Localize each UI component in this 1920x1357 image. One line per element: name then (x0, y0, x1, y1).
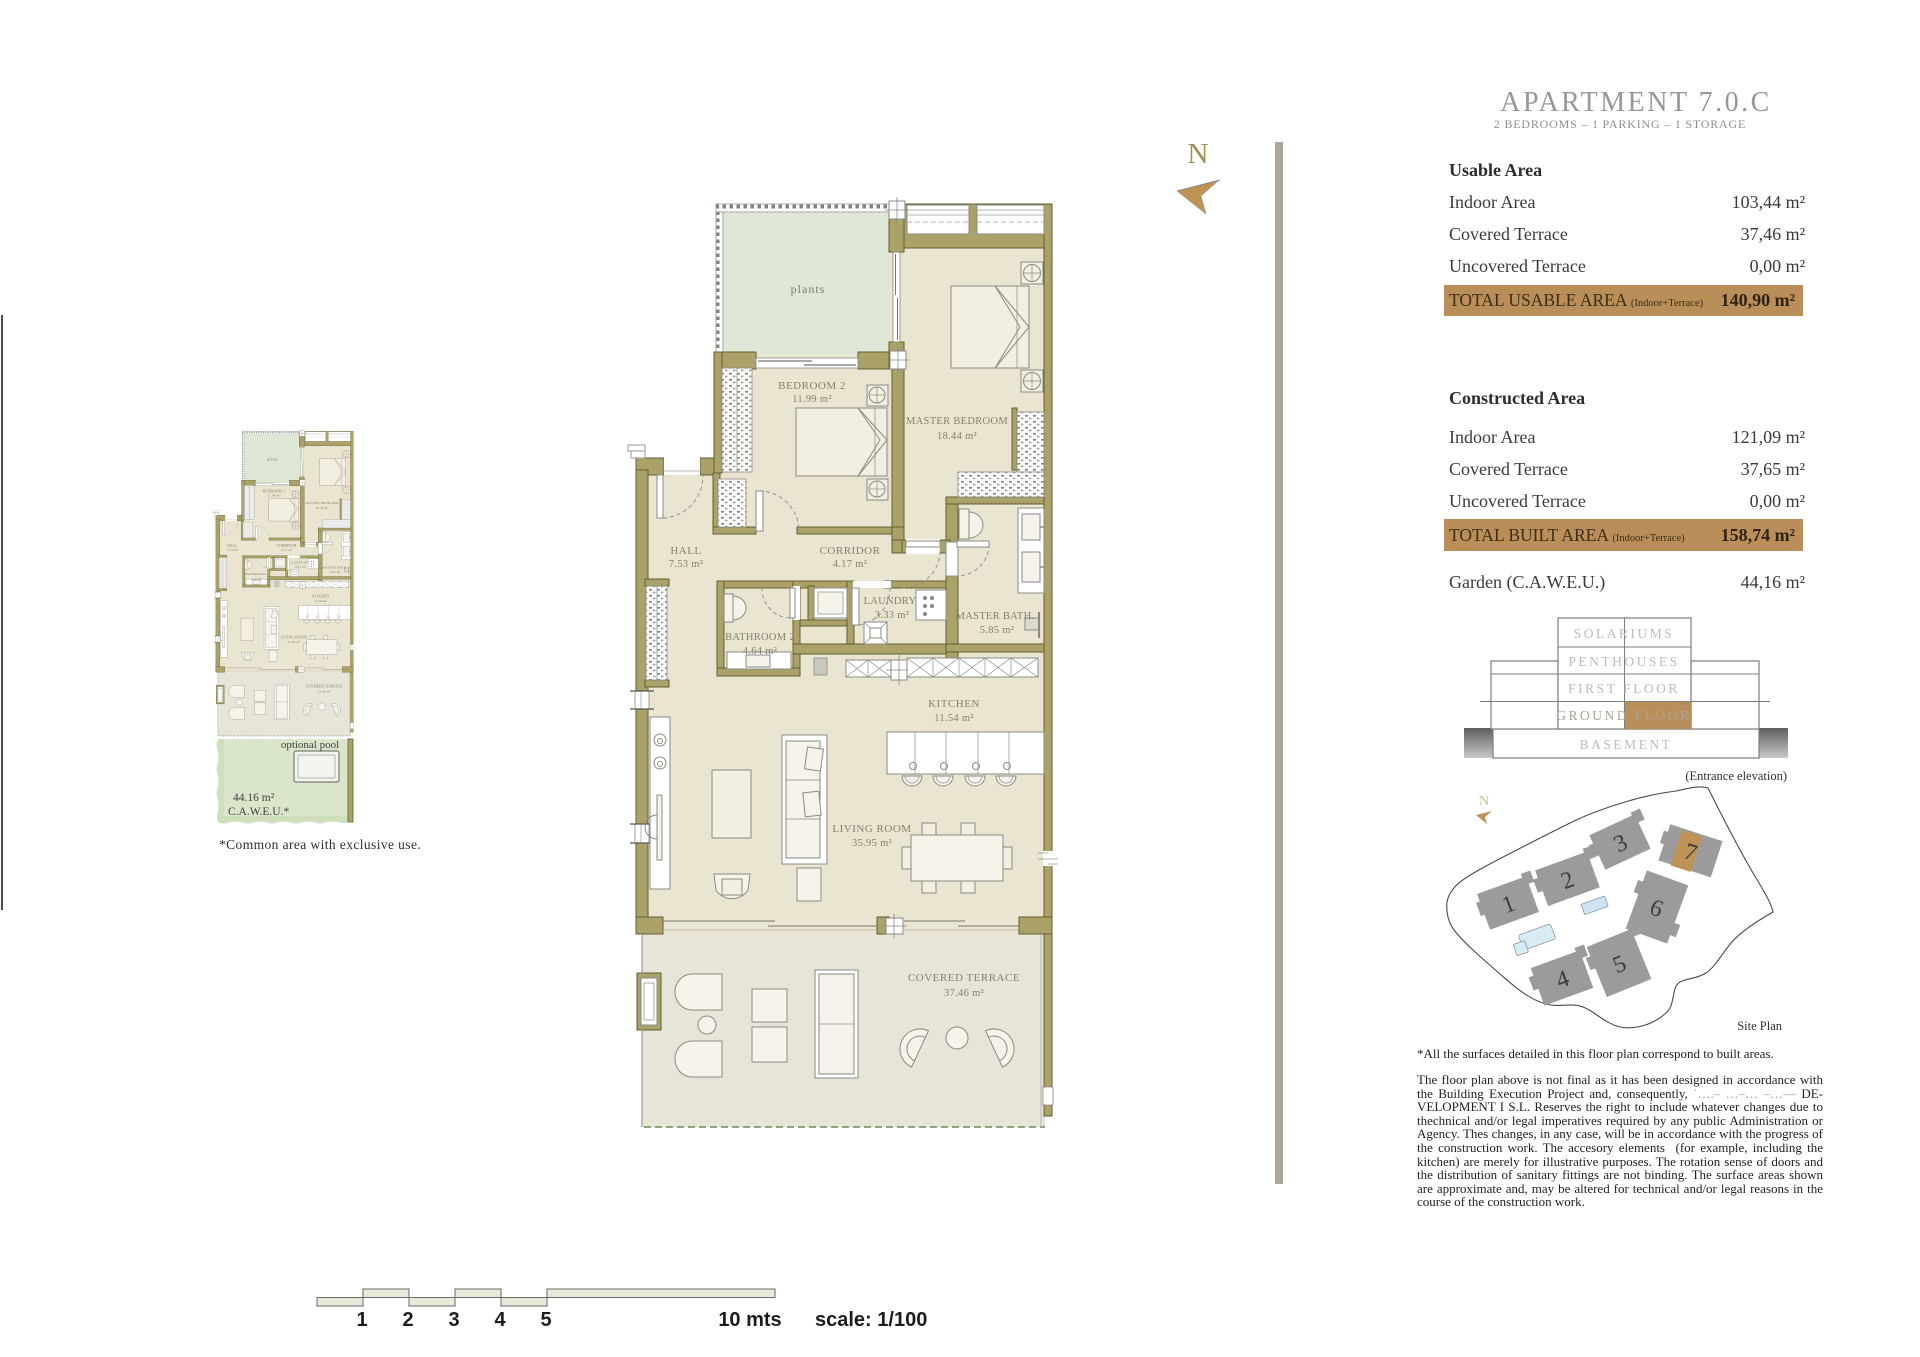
svg-text:BATHROOM 2: BATHROOM 2 (725, 632, 795, 643)
svg-text:CORRIDOR: CORRIDOR (820, 545, 881, 557)
svg-text:18.44 m²: 18.44 m² (937, 431, 977, 442)
svg-text:MASTER BATH.: MASTER BATH. (956, 611, 1035, 622)
svg-text:N: N (1188, 138, 1209, 170)
svg-text:11.54 m²: 11.54 m² (934, 713, 974, 724)
svg-text:37.46 m²: 37.46 m² (944, 988, 984, 999)
svg-text:4: 4 (494, 1309, 506, 1331)
svg-text:10 mts: 10 mts (718, 1309, 781, 1331)
svg-text:LAUNDRY: LAUNDRY (864, 596, 917, 607)
svg-text:KITCHEN: KITCHEN (928, 698, 980, 710)
svg-text:2: 2 (402, 1309, 413, 1331)
svg-text:PENTHOUSES: PENTHOUSES (1568, 654, 1679, 669)
svg-text:optional pool: optional pool (281, 739, 339, 751)
svg-text:5.85 m²: 5.85 m² (980, 625, 1014, 636)
svg-text:*Common area with exclusive us: *Common area with exclusive use. (219, 837, 421, 852)
svg-text:scale: 1/100: scale: 1/100 (815, 1309, 927, 1331)
svg-text:C.A.W.E.U.*: C.A.W.E.U.* (228, 806, 289, 818)
svg-text:3.33 m²: 3.33 m² (875, 610, 909, 621)
svg-text:FIRST FLOOR: FIRST FLOOR (1568, 681, 1680, 696)
svg-text:4.17 m²: 4.17 m² (833, 559, 867, 570)
svg-text:4.64 m²: 4.64 m² (743, 646, 777, 657)
svg-text:HALL: HALL (670, 545, 701, 557)
svg-text:5: 5 (540, 1309, 551, 1331)
svg-text:11.99 m²: 11.99 m² (792, 394, 832, 405)
svg-text:35.95 m²: 35.95 m² (852, 838, 892, 849)
svg-text:N: N (1479, 794, 1489, 809)
svg-text:GROUND FLOOR: GROUND FLOOR (1556, 708, 1691, 723)
svg-text:1: 1 (356, 1309, 367, 1331)
svg-text:BEDROOM 2: BEDROOM 2 (778, 380, 846, 392)
svg-text:MASTER BEDROOM: MASTER BEDROOM (906, 416, 1008, 427)
svg-text:7.53 m²: 7.53 m² (669, 559, 703, 570)
svg-text:SOLARIUMS: SOLARIUMS (1574, 626, 1675, 641)
svg-text:LIVING ROOM: LIVING ROOM (832, 823, 911, 835)
svg-text:plants: plants (791, 282, 826, 296)
svg-text:44.16 m²: 44.16 m² (233, 792, 275, 804)
svg-text:BASEMENT: BASEMENT (1580, 737, 1673, 752)
svg-text:3: 3 (448, 1309, 459, 1331)
svg-text:COVERED TERRACE: COVERED TERRACE (908, 972, 1020, 984)
